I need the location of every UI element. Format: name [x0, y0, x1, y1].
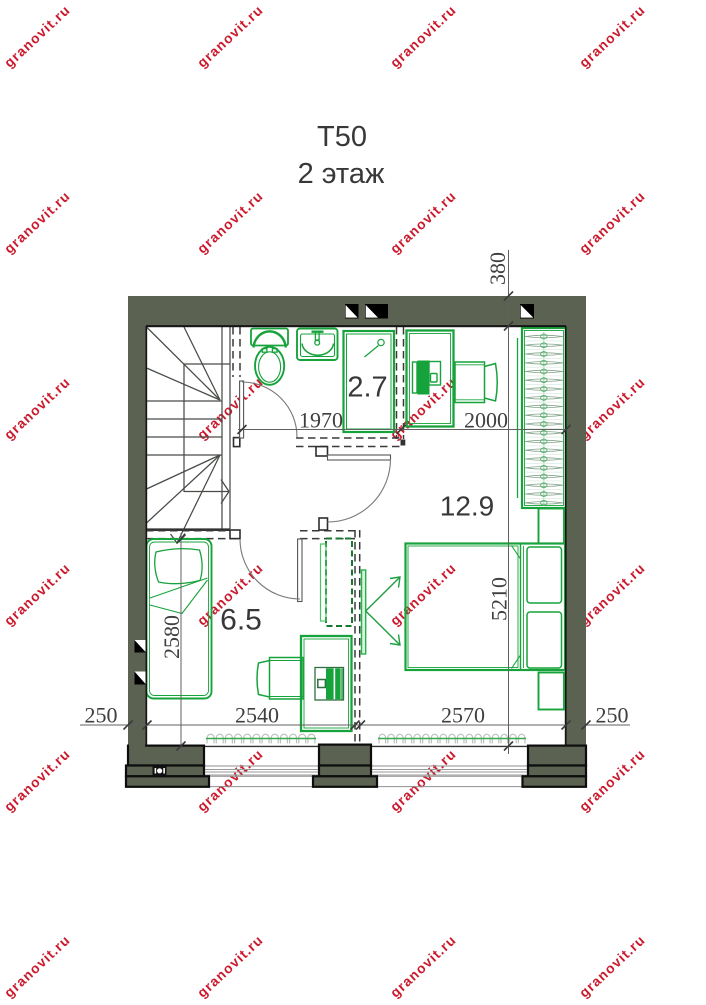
svg-text:2000: 2000	[464, 408, 508, 433]
svg-text:2570: 2570	[441, 703, 485, 728]
svg-text:5210: 5210	[487, 577, 512, 621]
svg-text:Т50: Т50	[317, 121, 367, 153]
svg-text:380: 380	[485, 252, 510, 285]
svg-text:12.9: 12.9	[440, 491, 495, 522]
svg-text:1970: 1970	[299, 408, 343, 433]
svg-text:2580: 2580	[159, 615, 184, 659]
svg-text:2 этаж: 2 этаж	[298, 158, 385, 190]
svg-text:6.5: 6.5	[220, 604, 262, 637]
svg-text:2540: 2540	[235, 703, 279, 728]
svg-text:2.7: 2.7	[347, 372, 387, 404]
svg-text:250: 250	[596, 703, 629, 728]
svg-text:250: 250	[85, 703, 118, 728]
